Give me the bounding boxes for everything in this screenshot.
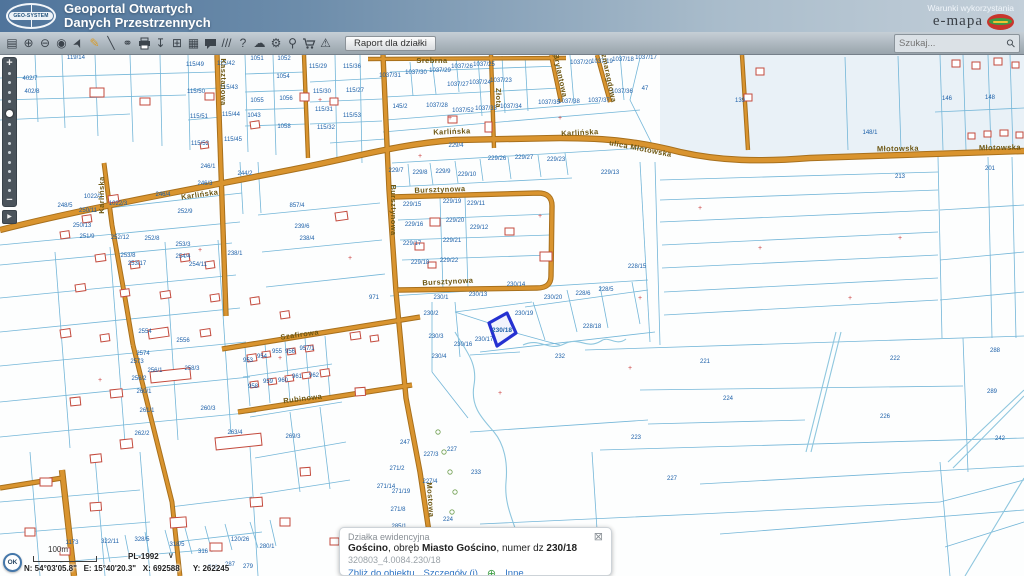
- parcel-number-label: 230/14: [507, 282, 526, 288]
- parcel-number-label: 253/17: [128, 261, 147, 267]
- parcel-boundary: [385, 88, 560, 97]
- parcel-boundary: [0, 377, 250, 402]
- building: [972, 62, 980, 69]
- parcel-number-label: 244/2: [237, 171, 253, 177]
- street-name-label: Karlińska: [433, 126, 471, 136]
- parcel-boundary: [320, 407, 330, 489]
- parcel-boundary: [648, 420, 805, 424]
- zoom-to-object-link[interactable]: Zbliż do obiektu: [348, 568, 415, 576]
- parcel-number-label: 229/21: [443, 238, 462, 244]
- parcel-boundary: [273, 55, 276, 155]
- parcel-number-label: 115/53: [343, 113, 362, 119]
- building: [1016, 132, 1023, 138]
- parcel-boundary: [432, 60, 436, 94]
- parcel-number-label: 148: [985, 95, 996, 101]
- parcel-number-label: 271/2: [389, 466, 405, 472]
- chevron-down-icon[interactable]: ∨: [168, 551, 174, 560]
- parcel-number-label: 953: [243, 358, 254, 364]
- parcel-number-label: 957/1: [299, 346, 315, 352]
- parcel-boundary: [940, 205, 1024, 210]
- building: [160, 291, 171, 299]
- parcel-boundary: [270, 520, 276, 546]
- parcel-boundary: [660, 190, 938, 200]
- building: [330, 98, 338, 105]
- building: [210, 543, 222, 551]
- parcel-boundary: [240, 162, 243, 214]
- map-svg[interactable]: ++++++++++++++++119/14402/7402/810511052…: [0, 55, 1024, 576]
- building: [994, 58, 1002, 65]
- parcel-number-label: 229/15: [403, 202, 422, 208]
- toolbar: ▤⊕⊖◉➤✎╲⚭↧⊞▦///?☁⚙⚲⚠ Raport dla działki ⚲: [0, 32, 1024, 55]
- parcel-boundary: [720, 510, 1024, 534]
- parcel-number-label: 1037/37: [588, 98, 610, 104]
- terms-link[interactable]: Warunki wykorzystania: [927, 3, 1014, 13]
- parcel-number-label: 1058: [277, 124, 291, 130]
- parcel-boundary: [662, 232, 938, 245]
- parcel-boundary: [664, 278, 938, 292]
- other-link[interactable]: Inne: [505, 568, 524, 576]
- road: [222, 317, 420, 349]
- building: [110, 389, 123, 398]
- parcel-boundary: [480, 159, 483, 181]
- parcel-number-label: 2554: [138, 329, 152, 335]
- parcel-number-label: 252/12: [111, 235, 130, 241]
- building: [1000, 130, 1008, 136]
- table-icon[interactable]: ▦: [187, 33, 201, 53]
- survey-cross: +: [348, 255, 352, 262]
- zoom-tick[interactable]: [8, 100, 11, 103]
- parcel-number-label: 238/1: [227, 251, 243, 257]
- street-name-label: Złota: [494, 88, 503, 108]
- building: [200, 329, 211, 337]
- parcel-boundary: [410, 62, 413, 96]
- zoom-out-icon[interactable]: ⊖: [38, 33, 52, 53]
- zoom-tick[interactable]: [8, 151, 11, 154]
- parcel-number-label: 271/19: [392, 489, 411, 495]
- report-parcel-button[interactable]: Raport dla działki: [345, 36, 436, 51]
- building: [756, 68, 764, 75]
- parcel-number-label: 239/6: [294, 224, 310, 230]
- parcel-number-label: 1037/23: [490, 78, 512, 84]
- parcel-number-label: 247: [400, 440, 411, 446]
- building: [250, 121, 260, 129]
- parcel-boundary: [480, 502, 940, 524]
- building: [540, 252, 552, 261]
- building: [60, 329, 71, 338]
- parcel-number-label: 1022/3: [109, 201, 128, 207]
- parcel-number-label: 402/7: [22, 76, 38, 82]
- parcel-number-label: 1052: [277, 56, 291, 62]
- comment-icon[interactable]: [203, 33, 217, 53]
- parcel-number-label: 229/8: [412, 170, 428, 176]
- parcel-boundary: [0, 275, 236, 298]
- link-icon[interactable]: ⚭: [121, 33, 135, 53]
- zoom-tick[interactable]: [8, 170, 11, 173]
- zoom-slider[interactable]: + −: [2, 57, 17, 207]
- measure-icon[interactable]: ///: [220, 33, 234, 53]
- parcel-boundary: [398, 214, 550, 220]
- parcel-boundary: [310, 78, 382, 82]
- parcel-number-label: 252/9: [177, 209, 193, 215]
- emapa-brand[interactable]: e-mapa: [933, 13, 1014, 30]
- parcel-number-label: 227/3: [423, 452, 439, 458]
- building: [40, 478, 52, 486]
- parcel-boundary: [470, 420, 648, 432]
- parcel-number-label: 971: [369, 295, 380, 301]
- zoom-out-slider-button[interactable]: −: [6, 195, 12, 206]
- scale-label: 100m: [48, 545, 68, 554]
- parcel-number-label: 201: [985, 166, 996, 172]
- parcel-number-label: 252/8: [144, 236, 160, 242]
- parcel-number-label: 960: [278, 378, 289, 384]
- parcel-boundary: [335, 55, 337, 160]
- search-box: ⚲: [894, 34, 1020, 53]
- parcel-boundary: [432, 372, 468, 418]
- parcel-number-label: 256/2: [131, 376, 147, 382]
- zoom-tick[interactable]: [8, 142, 11, 145]
- parcel-number-label: 230/20: [544, 295, 563, 301]
- geo-system-logo[interactable]: GEO-SYSTEM: [6, 3, 56, 29]
- parcel-number-label: 230/1: [433, 295, 449, 301]
- parcel-boundary: [160, 55, 162, 146]
- parcel-boundary: [938, 157, 942, 338]
- cart-icon[interactable]: [302, 33, 316, 53]
- street-name-label: Srebrna: [416, 56, 448, 65]
- parcel-number-label: 857/4: [289, 203, 305, 209]
- parcel-boundary: [400, 235, 550, 240]
- parcel-number-label: 318/5: [169, 542, 185, 548]
- zoom-tick[interactable]: [8, 179, 11, 182]
- parcel-boundary: [250, 447, 258, 576]
- download-icon[interactable]: ↧: [154, 33, 168, 53]
- building: [90, 502, 102, 511]
- help-icon[interactable]: ?: [236, 33, 250, 53]
- building: [95, 254, 106, 262]
- parcel-boundary: [988, 157, 992, 338]
- zoom-tick[interactable]: [8, 123, 11, 126]
- stream-line: [806, 332, 836, 452]
- stream-line: [965, 478, 1024, 576]
- parcel-boundary: [262, 240, 382, 252]
- parcel-number-label: 115/32: [317, 125, 336, 131]
- building: [1012, 62, 1019, 68]
- parcel-boundary: [250, 522, 258, 548]
- pointer-icon[interactable]: ➤: [71, 33, 85, 53]
- parcel-number-label: 1056: [279, 96, 293, 102]
- parcel-number-label: 1055: [250, 98, 264, 104]
- print-icon[interactable]: [137, 33, 151, 53]
- parcel-boundary: [508, 157, 511, 179]
- parcel-number-label: 139: [735, 98, 746, 104]
- parcel-boundary: [940, 462, 950, 576]
- parcel-number-label: 221: [700, 359, 711, 365]
- building: [952, 60, 960, 67]
- parcel-number-label: 263/4: [227, 430, 243, 436]
- zoom-tick[interactable]: [8, 81, 11, 84]
- parcel-number-label: 223: [631, 435, 642, 441]
- tree-symbol: [453, 490, 457, 494]
- parcel-number-label: 253/3: [175, 242, 191, 248]
- parcel-boundary: [630, 58, 655, 150]
- building: [100, 334, 110, 342]
- building: [120, 439, 133, 449]
- zoom-current-level[interactable]: [6, 110, 13, 117]
- parcel-boundary: [245, 90, 305, 92]
- title-line1: Geoportal Otwartych: [64, 2, 211, 16]
- survey-cross: +: [698, 205, 702, 212]
- building: [428, 262, 436, 268]
- parcel-number-label: 2556: [176, 338, 190, 344]
- parcel-number-label: 120/26: [231, 537, 250, 543]
- parcel-boundary: [455, 312, 489, 323]
- parcel-number-label: 1037/17: [635, 55, 657, 61]
- building: [82, 215, 92, 223]
- warning-icon[interactable]: ⚠: [319, 33, 333, 53]
- parcel-number-label: 246/3: [197, 181, 213, 187]
- parcel-number-label: 251/9: [79, 234, 95, 240]
- parcel-boundary: [455, 302, 460, 357]
- building: [505, 228, 514, 235]
- parcel-number-label: 230/19: [515, 311, 534, 317]
- building: [90, 454, 102, 463]
- building: [320, 369, 330, 377]
- ok-button[interactable]: OK: [3, 553, 22, 572]
- parcel-number-label: 955: [272, 349, 283, 355]
- parcel-number-label: 322/11: [101, 539, 120, 545]
- parcel-boundary: [170, 497, 252, 507]
- parcel-number-label: 228/18: [583, 324, 602, 330]
- building: [90, 88, 104, 97]
- parcel-boundary: [255, 442, 346, 458]
- parcel-number-label: 229/27: [515, 155, 534, 161]
- search-icon[interactable]: ⚲: [1001, 33, 1022, 54]
- building: [280, 311, 290, 319]
- parcel-boundary: [266, 274, 385, 287]
- details-link[interactable]: Szczegóły (i): [424, 568, 478, 576]
- building: [205, 93, 214, 100]
- parcel-number-label: 229/12: [470, 225, 489, 231]
- parcel-number-label: 229/10: [458, 172, 477, 178]
- page-title: Geoportal Otwartych Danych Przestrzennyc…: [64, 2, 211, 30]
- stream-line: [948, 390, 1024, 462]
- stream-line: [953, 396, 1024, 468]
- parcel-number-label: 261/1: [139, 408, 155, 414]
- parcel-number-label: 230/13: [469, 292, 488, 298]
- parcel-boundary: [940, 292, 1024, 300]
- map-area[interactable]: ++++++++++++++++119/14402/7402/810511052…: [0, 55, 1024, 576]
- parcel-number-label: 230/4: [431, 354, 447, 360]
- parcel-boundary: [258, 203, 380, 215]
- zoom-tick[interactable]: [8, 189, 11, 192]
- parcel-number-label: 258/3: [184, 366, 200, 372]
- parcel-number-label: 227: [447, 447, 458, 453]
- parcel-boundary: [0, 222, 240, 245]
- parcel-number-label: 280/1: [259, 544, 275, 550]
- parcel-boundary: [258, 162, 261, 213]
- cloud-icon[interactable]: ☁: [253, 33, 267, 53]
- parcel-number-label: 260/1: [136, 389, 152, 395]
- building: [744, 94, 752, 101]
- emapa-logo-icon: [987, 14, 1014, 30]
- tree-symbol: [442, 450, 446, 454]
- parcel-number-label: 328/5: [134, 537, 150, 543]
- parcel-number-label: 229/9: [435, 169, 451, 175]
- parcel-number-label: 254/4: [175, 254, 191, 260]
- parcel-number-label: 256/1: [147, 368, 163, 374]
- building: [430, 218, 440, 226]
- parcel-number-label: 115/49: [186, 62, 205, 68]
- building: [300, 467, 311, 476]
- parcel-number-label: 250/13: [73, 223, 92, 229]
- parcel-number-label: 1037/25: [473, 62, 495, 68]
- parcel-number-label: 229/4: [448, 143, 464, 149]
- parcel-number-label: 115/30: [313, 89, 332, 95]
- parcel-boundary: [188, 55, 190, 150]
- street-name-label: Szafirowa: [280, 327, 320, 341]
- parcel-number-label: 146: [942, 96, 953, 102]
- survey-cross: +: [418, 153, 422, 160]
- zoom-tick[interactable]: [8, 161, 11, 164]
- parcel-number-label: 956: [285, 349, 296, 355]
- parcel-boundary: [0, 308, 240, 332]
- building: [335, 211, 348, 221]
- header-bar: GEO-SYSTEM Geoportal Otwartych Danych Pr…: [0, 0, 1024, 32]
- parcel-boundary: [130, 55, 133, 142]
- parcel-number-label: 1043: [247, 113, 261, 119]
- parcel-number-label: 242: [995, 436, 1006, 442]
- parcel-boundary: [585, 336, 1024, 350]
- parcel-boundary: [565, 153, 568, 175]
- parcel-number-label: 1037/38: [558, 99, 580, 105]
- slider-expand-button[interactable]: ▶: [2, 210, 17, 224]
- geoportal-app: GEO-SYSTEM Geoportal Otwartych Danych Pr…: [0, 0, 1024, 576]
- parcel-boundary: [408, 164, 410, 186]
- layers-icon[interactable]: ▤: [5, 33, 19, 53]
- building: [370, 335, 379, 342]
- projection-label: PL-1992: [128, 552, 159, 561]
- street-name-label: Kasztanowa: [219, 58, 228, 106]
- settings-icon[interactable]: ⚙: [269, 33, 283, 53]
- parcel-number-label: 269/3: [285, 434, 301, 440]
- parcel-boundary: [538, 155, 541, 177]
- building: [250, 497, 263, 507]
- parcel-number-label: 228/15: [628, 264, 647, 270]
- parcel-number-label: 1037/24: [469, 80, 491, 86]
- parcel-number-label: 213: [895, 174, 906, 180]
- road: [238, 385, 412, 412]
- coordinates-readout: N: 54°03'05.8" E: 15°40'20.3" X: 692588 …: [24, 564, 229, 573]
- pencil-icon[interactable]: ✎: [88, 33, 102, 53]
- building: [485, 122, 492, 132]
- parcel-boundary: [662, 255, 938, 268]
- parcel-boundary: [632, 282, 640, 324]
- parcel-boundary: [640, 386, 963, 390]
- parcel-number-label: 230/17: [475, 337, 494, 343]
- survey-cross: +: [638, 295, 642, 302]
- close-icon[interactable]: ⊠: [594, 532, 603, 542]
- survey-cross: +: [848, 295, 852, 302]
- parcel-number-label: 115/50: [187, 89, 206, 95]
- draw-line-icon[interactable]: ╲: [104, 33, 118, 53]
- parcel-number-label: 229/22: [440, 258, 459, 264]
- parcel-number-label: 229/17: [403, 241, 422, 247]
- parcel-boundary: [0, 522, 150, 534]
- parcel-boundary: [664, 300, 938, 315]
- building: [300, 93, 309, 101]
- parcel-number-label: 115/51: [190, 114, 209, 120]
- parcel-number-label: 115/52: [191, 141, 210, 147]
- parcel-info-popup: Działka ewidencyjna ⊠ Gościno, obręb Mia…: [339, 527, 612, 576]
- parcel-number-label: 228/5: [598, 287, 614, 293]
- parcel-boundary: [330, 139, 385, 143]
- building: [170, 517, 187, 528]
- survey-cross: +: [538, 213, 542, 220]
- parcel-number-label: 230/16: [454, 342, 473, 348]
- building: [75, 284, 86, 292]
- survey-cross: +: [448, 115, 452, 122]
- survey-cross: +: [628, 365, 632, 372]
- building: [330, 538, 339, 545]
- emapa-wordmark: e-mapa: [933, 13, 983, 30]
- parcel-boundary: [325, 336, 330, 396]
- parcel-number-label: 1051: [250, 56, 264, 62]
- parcel-number-label: 260/3: [200, 406, 216, 412]
- parcel-number-label: 115/44: [222, 112, 241, 118]
- parcel-number-label: 1037/35: [538, 100, 560, 106]
- parcel-number-label: 271/8: [390, 507, 406, 513]
- popup-title: Działka ewidencyjna: [348, 532, 430, 542]
- parcel-number-label: 224: [443, 517, 454, 523]
- parcel-number-label: 246/4: [155, 192, 171, 198]
- building: [250, 297, 260, 305]
- parcel-boundary: [290, 412, 300, 492]
- building: [984, 131, 991, 137]
- parcel-number-label: 1037/28: [426, 103, 448, 109]
- zoom-tick[interactable]: [8, 72, 11, 75]
- parcel-description: Gościno, obręb Miasto Gościno, numer dz …: [348, 543, 603, 554]
- parcel-number-label: 246/1: [200, 164, 216, 170]
- survey-cross: +: [558, 115, 562, 122]
- parcel-number-label: 222: [890, 356, 901, 362]
- highlighted-parcel-label: 230/18: [492, 327, 512, 334]
- parcel-number-label: 229/7: [388, 168, 404, 174]
- zoom-tick[interactable]: [8, 132, 11, 135]
- parcel-number-label: 959: [263, 379, 274, 385]
- parcel-number-label: 230/3: [428, 334, 444, 340]
- survey-cross: +: [498, 390, 502, 397]
- zoom-in-icon[interactable]: ⊕: [22, 33, 36, 53]
- parcel-id: 320803_4.0084.230/18: [348, 555, 603, 565]
- search-input[interactable]: [895, 38, 1003, 49]
- parcel-boundary: [963, 338, 968, 472]
- road: [0, 478, 62, 488]
- parcel-number-label: 1054: [276, 74, 290, 80]
- search-plus-icon[interactable]: ⚲: [286, 33, 300, 53]
- parcel-boundary: [0, 490, 140, 502]
- parcel-number-label: 288: [990, 348, 1001, 354]
- zoom-in-slider-button[interactable]: +: [6, 58, 12, 69]
- parcel-number-label: 232: [555, 354, 566, 360]
- parcel-number-label: 1037/30: [405, 70, 427, 76]
- zoom-tick[interactable]: [8, 91, 11, 94]
- zoom-ticks[interactable]: [6, 69, 13, 195]
- parcel-number-label: 1037/29: [429, 68, 451, 74]
- plus-circle-icon[interactable]: ⊕: [487, 567, 496, 576]
- parcel-number-label: 229/23: [547, 157, 566, 163]
- copy-frame-icon[interactable]: ⊞: [170, 33, 184, 53]
- building: [968, 133, 975, 139]
- parcel-number-label: 229/18: [411, 260, 430, 266]
